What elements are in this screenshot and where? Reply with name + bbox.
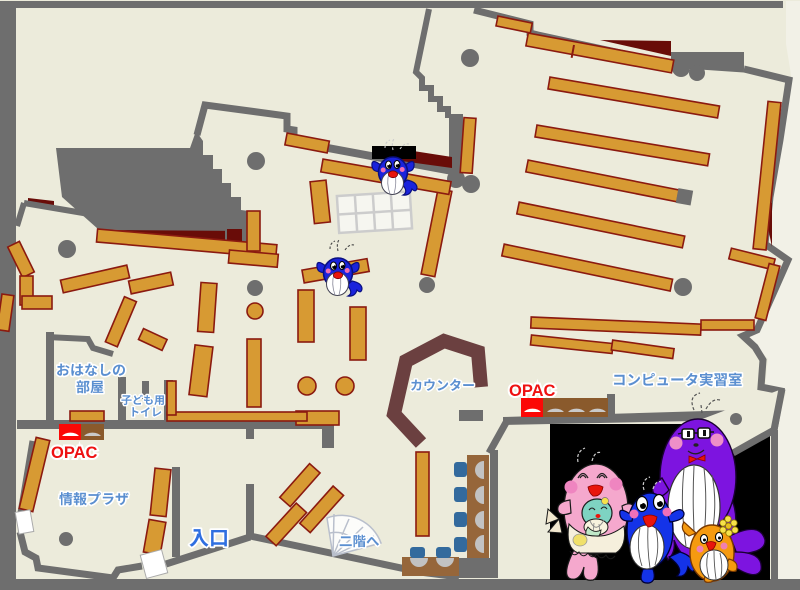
svg-text:OPAC: OPAC xyxy=(51,444,98,462)
svg-text:OPAC: OPAC xyxy=(509,382,556,400)
